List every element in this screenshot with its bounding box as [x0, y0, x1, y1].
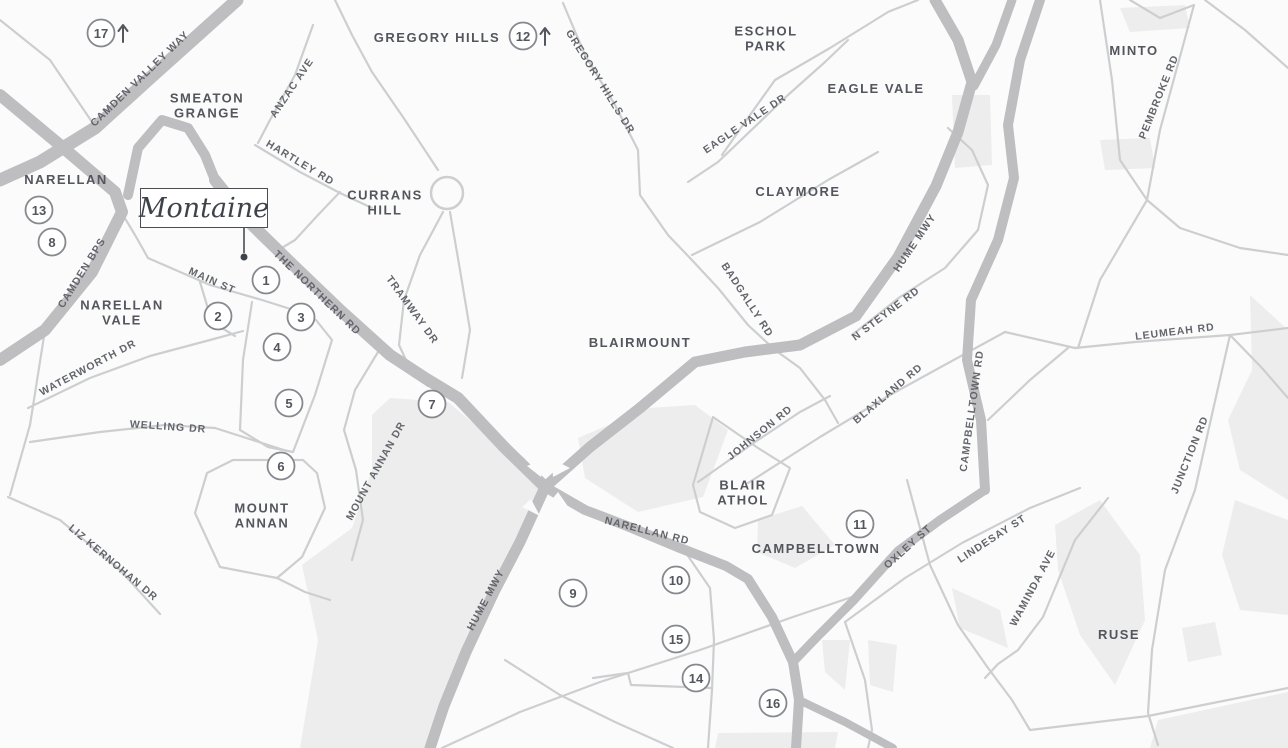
marker-number: 4	[273, 340, 281, 355]
montaine-location-dot	[241, 254, 248, 261]
marker-number: 14	[689, 671, 704, 686]
suburb-label-mount-annan: MOUNTANNAN	[234, 501, 289, 531]
map-marker-2[interactable]: 2	[205, 303, 232, 330]
marker-number: 17	[94, 26, 108, 41]
map-marker-8[interactable]: 8	[39, 229, 66, 256]
suburb-label-smeaton-grange: SMEATONGRANGE	[170, 91, 244, 121]
marker-number: 2	[214, 309, 221, 324]
montaine-label: Montaine	[139, 195, 269, 222]
map-marker-1[interactable]: 1	[253, 267, 280, 294]
marker-number: 13	[32, 203, 46, 218]
area-minto-2	[1100, 138, 1155, 170]
map-marker-16[interactable]: 16	[760, 690, 787, 717]
montaine-label-box[interactable]: Montaine	[140, 188, 268, 228]
marker-number: 8	[48, 235, 55, 250]
suburb-label-campbelltown: CAMPBELLTOWN	[752, 541, 881, 556]
map-svg: CAMDEN VALLEY WAYCAMDEN BPSANZAC AVEHART…	[0, 0, 1288, 748]
suburb-label-gregory-hills: GREGORY HILLS	[374, 30, 500, 45]
map-marker-5[interactable]: 5	[276, 390, 303, 417]
marker-number: 10	[669, 573, 683, 588]
map-marker-10[interactable]: 10	[663, 567, 690, 594]
marker-number: 9	[569, 586, 576, 601]
map-marker-11[interactable]: 11	[847, 511, 874, 538]
marker-number: 11	[853, 517, 867, 532]
marker-number: 12	[516, 29, 530, 44]
suburb-label-blair-athol: BLAIRATHOL	[717, 478, 768, 508]
marker-number: 7	[428, 397, 435, 412]
roundabout	[431, 177, 463, 209]
suburb-label-ruse: RUSE	[1098, 627, 1140, 642]
suburb-label-narellan: NARELLAN	[24, 172, 108, 187]
marker-number: 15	[669, 632, 683, 647]
marker-number: 6	[277, 459, 284, 474]
marker-number: 5	[285, 396, 292, 411]
map-marker-9[interactable]: 9	[560, 580, 587, 607]
area-minto-1	[1120, 5, 1190, 32]
map-marker-4[interactable]: 4	[264, 334, 291, 361]
map-canvas: CAMDEN VALLEY WAYCAMDEN BPSANZAC AVEHART…	[0, 0, 1288, 748]
area-y-wedge2	[868, 640, 897, 692]
suburb-label-eagle-vale: EAGLE VALE	[827, 81, 924, 96]
map-marker-3[interactable]: 3	[288, 304, 315, 331]
area-ruse-square	[1182, 622, 1222, 662]
marker-number: 1	[262, 273, 269, 288]
road-y-stem	[793, 662, 799, 748]
area-y-bottom	[715, 732, 838, 748]
marker-number: 16	[766, 696, 780, 711]
suburb-label-claymore: CLAYMORE	[755, 184, 840, 199]
map-marker-14[interactable]: 14	[683, 665, 710, 692]
map-marker-7[interactable]: 7	[419, 391, 446, 418]
marker-number: 3	[297, 310, 304, 325]
map-marker-6[interactable]: 6	[268, 453, 295, 480]
map-marker-15[interactable]: 15	[663, 626, 690, 653]
suburb-label-blairmount: BLAIRMOUNT	[589, 335, 691, 350]
suburb-label-minto: MINTO	[1109, 43, 1158, 58]
map-marker-13[interactable]: 13	[26, 197, 53, 224]
